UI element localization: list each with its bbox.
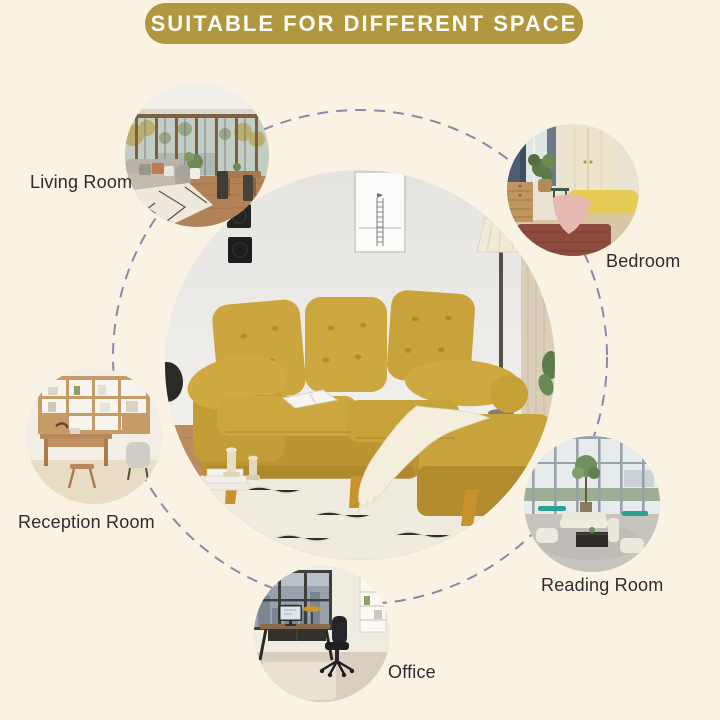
title-banner: SUITABLE FOR DIFFERENT SPACE (145, 3, 583, 44)
photo-reception-room (26, 368, 162, 504)
living-room-illustration (125, 83, 269, 227)
photo-reading-room (524, 436, 660, 572)
bedroom-illustration (507, 124, 639, 256)
label-reception-room: Reception Room (18, 512, 155, 533)
photo-office (254, 566, 390, 702)
page-title: SUITABLE FOR DIFFERENT SPACE (151, 11, 578, 37)
reading-room-illustration (524, 436, 660, 572)
label-bedroom: Bedroom (606, 251, 680, 272)
hero-photo-sofa (165, 170, 555, 560)
photo-living-room (125, 83, 269, 227)
bookshelf (38, 376, 150, 434)
wardrobe (563, 128, 613, 198)
label-office: Office (388, 662, 436, 683)
poster-canvas: SUITABLE FOR DIFFERENT SPACE (0, 0, 720, 720)
reception-room-illustration (26, 368, 162, 504)
wall-art-frame (355, 172, 405, 252)
sofa-scene-illustration (165, 170, 555, 560)
label-living-room: Living Room (30, 172, 132, 193)
office-illustration (254, 566, 390, 702)
label-reading-room: Reading Room (541, 575, 663, 596)
photo-bedroom (507, 124, 639, 256)
